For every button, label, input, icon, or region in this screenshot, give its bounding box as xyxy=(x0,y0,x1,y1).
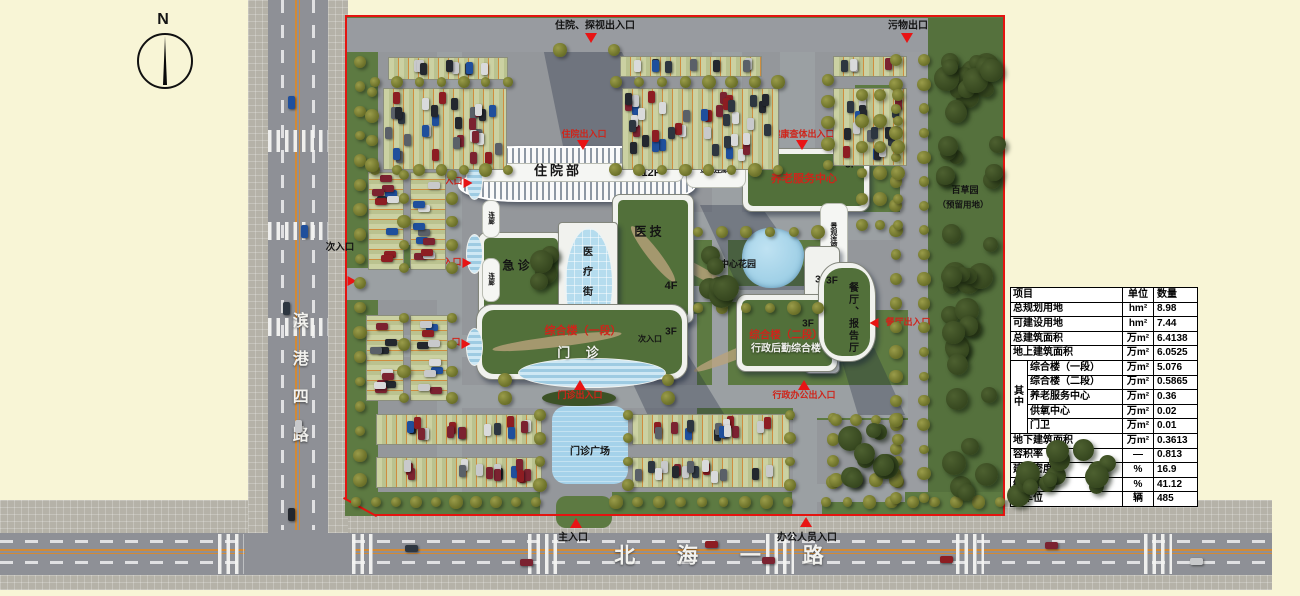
parked-car xyxy=(841,60,848,72)
tree-icon xyxy=(822,74,834,86)
tree-icon xyxy=(354,106,365,117)
parked-car xyxy=(726,147,733,159)
tree-icon xyxy=(447,340,457,350)
parked-car xyxy=(385,339,397,346)
parked-car xyxy=(712,144,719,156)
tree-icon xyxy=(891,153,900,162)
beihai-road-name: 北 海 一 路 xyxy=(614,544,842,567)
tree-icon xyxy=(436,164,447,175)
parked-car xyxy=(750,95,757,107)
parked-car xyxy=(630,142,637,154)
entrance-inpatient: 住院出入口 xyxy=(561,130,606,140)
tree-icon xyxy=(892,434,903,445)
tree-icon xyxy=(533,478,547,492)
tree-icon xyxy=(741,303,750,312)
parked-car xyxy=(486,467,493,479)
tree-icon xyxy=(995,497,1005,507)
tree-icon xyxy=(889,126,902,139)
parked-car xyxy=(702,460,709,472)
parked-car xyxy=(393,92,400,104)
tree-icon xyxy=(740,226,751,237)
lane-line xyxy=(281,0,284,530)
dense-tree-icon xyxy=(941,266,962,287)
tree-icon xyxy=(355,426,365,436)
tree-icon xyxy=(856,89,868,101)
tree-icon xyxy=(739,496,750,507)
parked-car xyxy=(665,61,672,73)
tree-icon xyxy=(917,467,931,481)
parked-car xyxy=(407,421,414,433)
parked-car xyxy=(634,60,641,72)
parked-car xyxy=(447,426,454,438)
parked-car xyxy=(469,118,476,130)
table-row: 养老服务中心万m²0.36 xyxy=(1011,390,1198,405)
tree-icon xyxy=(919,201,929,211)
road-car xyxy=(1045,542,1058,549)
tree-icon xyxy=(765,227,774,236)
parked-car xyxy=(422,330,434,337)
dense-tree-icon xyxy=(936,166,955,185)
tree-icon xyxy=(890,297,903,310)
tree-icon xyxy=(703,164,714,175)
tree-icon xyxy=(370,77,379,86)
entrance-inpatient-visit: 住院、探视出入口 xyxy=(555,21,635,32)
tree-icon xyxy=(917,151,930,164)
parked-car xyxy=(687,461,694,473)
entrance-admin-office: 行政办公出入口 xyxy=(772,391,835,401)
parked-car xyxy=(720,469,727,481)
lane-line xyxy=(0,540,245,543)
admin-wing-label: 综合楼（二段） xyxy=(749,330,823,342)
building-outpatient-floors: 3F xyxy=(665,327,677,338)
tree-icon xyxy=(355,81,365,91)
tree-icon xyxy=(918,395,929,406)
tree-icon xyxy=(534,432,547,445)
parked-car xyxy=(372,189,384,196)
crosswalk xyxy=(268,222,328,240)
parked-car xyxy=(429,359,441,366)
tree-icon xyxy=(919,445,928,454)
parked-car xyxy=(422,98,429,110)
tree-icon xyxy=(481,77,490,86)
tree-icon xyxy=(919,372,928,381)
parked-car xyxy=(648,91,655,103)
parked-car xyxy=(743,133,750,145)
crosswalk xyxy=(528,534,560,574)
tree-icon xyxy=(855,114,869,128)
parked-car xyxy=(494,423,501,435)
site-plan-canvas: 住院部 12F 医 技 4F 急 诊 医疗街 综合楼（一段） 门 诊 3F 次入… xyxy=(0,0,1300,596)
road-car xyxy=(288,96,295,109)
entrance-main: 主入口 xyxy=(558,533,588,544)
parked-car xyxy=(376,323,388,330)
parked-car xyxy=(642,135,649,147)
parked-car xyxy=(655,427,662,439)
entrance-arrow xyxy=(464,178,473,188)
tree-icon xyxy=(917,78,930,91)
parked-car xyxy=(659,139,666,151)
entrance-arrow xyxy=(570,518,582,528)
parked-car xyxy=(422,125,429,137)
parked-car xyxy=(413,223,425,230)
tree-icon xyxy=(784,479,795,490)
tree-icon xyxy=(498,391,511,404)
tree-icon xyxy=(748,163,762,177)
tree-icon xyxy=(470,496,482,508)
tree-icon xyxy=(680,76,691,87)
tree-icon xyxy=(889,370,903,384)
parked-car xyxy=(766,465,773,477)
parked-car xyxy=(668,127,675,139)
parked-car xyxy=(704,127,711,139)
tree-icon xyxy=(449,495,462,508)
tree-icon xyxy=(919,493,929,503)
dense-tree-icon xyxy=(942,321,965,344)
parked-car xyxy=(661,461,668,473)
tree-icon xyxy=(972,495,985,508)
tree-icon xyxy=(856,141,867,152)
tree-icon xyxy=(609,495,622,508)
parked-car xyxy=(370,347,382,354)
tree-icon xyxy=(919,176,929,186)
building-medtech-label: 医 技 xyxy=(634,225,661,238)
dense-tree-icon xyxy=(866,423,881,438)
building-medtech-floors: 4F xyxy=(665,280,678,292)
tree-icon xyxy=(889,345,903,359)
tree-icon xyxy=(856,193,867,204)
table-row: 供氧中心万m²0.02 xyxy=(1011,404,1198,419)
parked-car xyxy=(374,382,386,389)
table-row: 总规划用地hm²8.98 xyxy=(1011,302,1198,317)
parked-car xyxy=(629,120,636,132)
tree-icon xyxy=(355,254,365,264)
tree-icon xyxy=(873,166,887,180)
tree-icon xyxy=(365,158,378,171)
parked-car xyxy=(420,63,427,75)
north-compass xyxy=(137,33,193,89)
tree-icon xyxy=(697,497,706,506)
tree-icon xyxy=(353,203,367,217)
main-entrance-island xyxy=(556,496,612,528)
parked-car xyxy=(452,62,459,74)
parked-car xyxy=(470,152,477,164)
tree-icon xyxy=(623,457,632,466)
tree-icon xyxy=(399,313,409,323)
tree-icon xyxy=(875,220,885,230)
road-car xyxy=(405,545,418,552)
compass-needle-icon xyxy=(160,36,170,85)
parked-car xyxy=(386,228,398,235)
parked-car xyxy=(431,105,438,117)
parked-car xyxy=(418,384,430,391)
building-inpatient-label: 住院部 xyxy=(534,164,582,178)
parked-car xyxy=(743,143,750,155)
parked-car xyxy=(475,104,482,116)
parked-car xyxy=(762,94,769,106)
parked-car xyxy=(659,102,666,114)
dense-tree-icon xyxy=(530,273,548,291)
tree-icon xyxy=(622,479,634,491)
parked-car xyxy=(521,421,528,433)
building-eldercare-label: 养老服务中心 xyxy=(771,173,837,185)
parked-car xyxy=(413,201,425,208)
parked-car xyxy=(380,175,392,182)
parked-car xyxy=(743,60,750,72)
parked-car xyxy=(395,107,402,119)
tree-icon xyxy=(823,160,833,170)
tree-icon xyxy=(447,313,456,322)
parked-car xyxy=(652,130,659,142)
road-car xyxy=(288,508,295,521)
dense-tree-icon xyxy=(981,387,997,403)
entrance-office-staff: 办公人员入口 xyxy=(777,533,837,544)
tree-icon xyxy=(889,413,903,427)
crosswalk xyxy=(956,534,984,574)
building-canteen-label: 餐厅、报告厅 xyxy=(847,282,858,354)
outpatient-side-entrance: 次入口 xyxy=(638,336,662,345)
tree-icon xyxy=(891,104,901,114)
site-boundary-top xyxy=(345,15,1005,17)
tree-icon xyxy=(353,449,367,463)
tree-icon xyxy=(531,497,541,507)
parked-car xyxy=(451,98,458,110)
tree-icon xyxy=(397,215,411,229)
dense-tree-icon xyxy=(1073,439,1094,460)
parked-car xyxy=(489,105,496,117)
outpatient-wing-label: 综合楼（一段） xyxy=(545,325,622,337)
dense-tree-icon xyxy=(983,237,998,252)
site-boundary-left xyxy=(345,15,347,499)
parked-car xyxy=(404,460,411,472)
crosswalk xyxy=(1144,534,1172,574)
crosswalk xyxy=(352,534,376,574)
tree-icon xyxy=(675,497,686,508)
entrance-waste-exit: 污物出口 xyxy=(888,21,928,32)
crosswalk xyxy=(218,534,244,574)
dense-tree-icon xyxy=(946,388,967,409)
parked-car xyxy=(393,148,400,160)
building-admin-label: 行政后勤综合楼 xyxy=(751,344,821,355)
parked-car xyxy=(724,425,731,437)
parked-car xyxy=(517,470,524,482)
parked-car xyxy=(690,59,697,71)
parked-car xyxy=(404,134,411,146)
tree-icon xyxy=(479,163,492,176)
parked-car xyxy=(494,469,501,481)
parked-car xyxy=(683,110,690,122)
herb-garden-sublabel: （预留用地） xyxy=(937,200,988,209)
parked-car xyxy=(495,143,502,155)
outpatient-plaza xyxy=(552,406,628,484)
office-entrance-road xyxy=(793,395,817,516)
dense-tree-icon xyxy=(938,136,958,156)
tree-icon xyxy=(749,76,760,87)
tree-icon xyxy=(918,297,931,310)
entrance-arrow xyxy=(577,140,589,150)
parked-car xyxy=(472,131,479,143)
tree-icon xyxy=(366,135,377,146)
binggang-road-name: 滨港四路 xyxy=(289,312,307,464)
parked-car xyxy=(453,137,460,149)
tree-icon xyxy=(623,410,632,419)
parked-car xyxy=(382,373,394,380)
dense-tree-icon xyxy=(985,164,1002,181)
parked-car xyxy=(711,471,718,483)
crosswalk xyxy=(268,130,328,152)
parked-car xyxy=(701,109,708,121)
tree-icon xyxy=(771,75,784,88)
corridor-label: 连廊 xyxy=(486,273,493,286)
parked-car xyxy=(466,62,473,74)
tree-icon xyxy=(399,240,409,250)
dense-tree-icon xyxy=(1023,479,1039,495)
tree-icon xyxy=(397,365,410,378)
tree-icon xyxy=(662,374,674,386)
entrance-arrow xyxy=(796,140,808,150)
tree-icon xyxy=(773,165,783,175)
parked-car xyxy=(524,469,531,481)
road-car xyxy=(1190,558,1203,565)
table-row: 可建设用地hm²7.44 xyxy=(1011,317,1198,332)
parked-car xyxy=(424,370,436,377)
tree-icon xyxy=(437,77,446,86)
entrance-arrow xyxy=(574,380,586,390)
tree-icon xyxy=(891,166,905,180)
tree-icon xyxy=(693,303,702,312)
tree-icon xyxy=(446,366,457,377)
tree-icon xyxy=(399,170,409,180)
tree-icon xyxy=(632,497,642,507)
parked-car xyxy=(843,146,850,158)
parked-car xyxy=(428,340,440,347)
parked-car xyxy=(871,127,878,139)
tree-icon xyxy=(827,455,839,467)
tree-icon xyxy=(679,164,692,177)
tree-icon xyxy=(354,179,365,190)
parked-car xyxy=(731,134,738,146)
central-garden-label: 中心花园 xyxy=(720,260,756,270)
tree-icon xyxy=(355,401,366,412)
parked-car xyxy=(638,108,645,120)
parked-car xyxy=(430,387,442,394)
emergency-entrance-canopy xyxy=(466,234,483,274)
tree-icon xyxy=(821,116,835,130)
parked-car xyxy=(385,127,392,139)
tree-icon xyxy=(534,409,546,421)
tree-icon xyxy=(890,322,901,333)
tree-icon xyxy=(446,192,459,205)
parked-car xyxy=(764,417,771,429)
tree-icon xyxy=(783,497,792,506)
parked-car xyxy=(439,92,446,104)
tree-icon xyxy=(787,301,801,315)
tree-icon xyxy=(919,347,929,357)
entrance-arrow xyxy=(800,517,812,527)
tree-icon xyxy=(693,227,703,237)
tree-icon xyxy=(653,496,664,507)
parked-car xyxy=(446,60,453,72)
parked-car xyxy=(671,422,678,434)
parked-car xyxy=(476,464,483,476)
tree-icon xyxy=(874,141,886,153)
tree-icon xyxy=(354,302,365,313)
building-admin-floors: 3F xyxy=(802,319,814,330)
tree-icon xyxy=(446,216,457,227)
tree-icon xyxy=(447,170,457,180)
parked-car xyxy=(652,60,659,72)
binggang-road-sidewalk-west xyxy=(248,0,268,533)
tree-icon xyxy=(354,351,365,362)
outpatient-canopy xyxy=(518,358,666,388)
parked-car xyxy=(455,117,462,129)
dense-tree-icon xyxy=(942,224,962,244)
center-line xyxy=(0,553,245,555)
tree-icon xyxy=(498,373,512,387)
tree-icon xyxy=(821,95,834,108)
intersection xyxy=(248,533,348,575)
tree-icon xyxy=(355,377,365,387)
parked-car xyxy=(484,424,491,436)
tree-icon xyxy=(917,272,930,285)
dense-tree-icon xyxy=(707,258,724,275)
tree-icon xyxy=(657,77,667,87)
tree-icon xyxy=(503,77,512,86)
parked-car xyxy=(375,198,387,205)
entrance-arrow xyxy=(901,33,913,43)
parked-car xyxy=(432,149,439,161)
parked-car xyxy=(747,118,754,130)
parked-car xyxy=(420,321,432,328)
building-emergency-label: 急 诊 xyxy=(502,259,529,272)
parked-car xyxy=(625,93,632,105)
parked-car xyxy=(508,427,515,439)
tree-icon xyxy=(873,192,887,206)
parked-car xyxy=(728,100,735,112)
parked-car xyxy=(687,420,694,432)
parked-car xyxy=(847,101,854,113)
table-row: 停车位辆485 xyxy=(1011,492,1198,507)
outpatient-plaza-label: 门诊广场 xyxy=(570,447,610,458)
dense-tree-icon xyxy=(713,275,739,301)
tree-icon xyxy=(354,228,367,241)
tree-icon xyxy=(719,497,728,506)
parked-car xyxy=(724,136,731,148)
tree-icon xyxy=(610,76,622,88)
tree-icon xyxy=(918,54,930,66)
table-row: 综合楼（二段）万m²0.5865 xyxy=(1011,375,1198,390)
parked-car xyxy=(381,255,393,262)
dense-tree-icon xyxy=(989,136,1006,153)
road-car xyxy=(301,225,308,238)
entrance-arrow xyxy=(462,339,471,349)
tree-icon xyxy=(353,473,367,487)
lane-line xyxy=(0,561,245,564)
parked-car xyxy=(481,63,488,75)
tree-icon xyxy=(633,164,644,175)
site-boundary-bottom xyxy=(374,514,1005,516)
tree-icon xyxy=(891,140,905,154)
parked-car xyxy=(418,428,425,440)
dense-tree-icon xyxy=(961,438,978,455)
tree-icon xyxy=(355,131,364,140)
parked-car xyxy=(850,59,857,71)
parked-car xyxy=(423,238,435,245)
tree-icon xyxy=(446,239,458,251)
parked-car xyxy=(675,123,682,135)
entrance-arrow xyxy=(870,318,879,328)
parked-car xyxy=(459,465,466,477)
tree-icon xyxy=(863,495,876,508)
